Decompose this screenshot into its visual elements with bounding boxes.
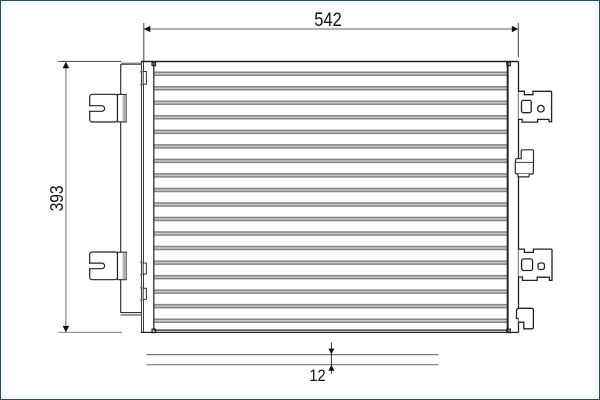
svg-text:12: 12	[309, 367, 325, 385]
svg-text:393: 393	[47, 185, 67, 211]
svg-text:542: 542	[314, 10, 342, 31]
